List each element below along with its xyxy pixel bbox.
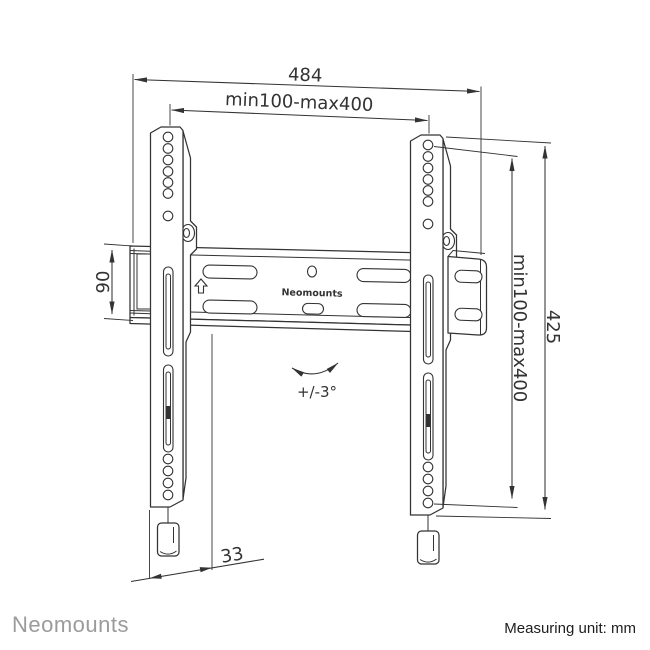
dim-label-vesa-width: min100-max400 [225, 89, 374, 116]
dim-vesa-width: min100-max400 [170, 89, 429, 133]
rail-center-hole [308, 266, 317, 277]
dim-label-total-height: 425 [542, 310, 563, 344]
technical-drawing: Neomounts [0, 0, 650, 650]
dim-label-total-width: 484 [288, 64, 323, 86]
left-pull-cord [158, 507, 180, 556]
rail-center-slot [302, 303, 323, 314]
measuring-unit-label: Measuring unit: mm [504, 620, 636, 637]
dim-label-vesa-height: min100-max400 [509, 254, 530, 402]
rail-brand-print: Neomounts [281, 287, 343, 299]
product-dimension-diagram-page: Neomounts [0, 0, 650, 650]
left-bracket-arm [151, 127, 197, 556]
dim-rail-height: 90 [93, 244, 133, 321]
rail-right-end-cap [448, 251, 487, 336]
brand-logo: Neomounts [12, 612, 129, 638]
tilt-annotation: +/-3° [292, 363, 338, 401]
right-bracket-arm [411, 135, 457, 564]
dim-label-rail-height: 90 [93, 271, 114, 294]
right-pull-cord [418, 515, 440, 564]
tilt-arc-arrow-icon [292, 363, 338, 374]
dim-label-wall-depth: 33 [219, 543, 245, 567]
tilt-range-label: +/-3° [297, 383, 337, 401]
